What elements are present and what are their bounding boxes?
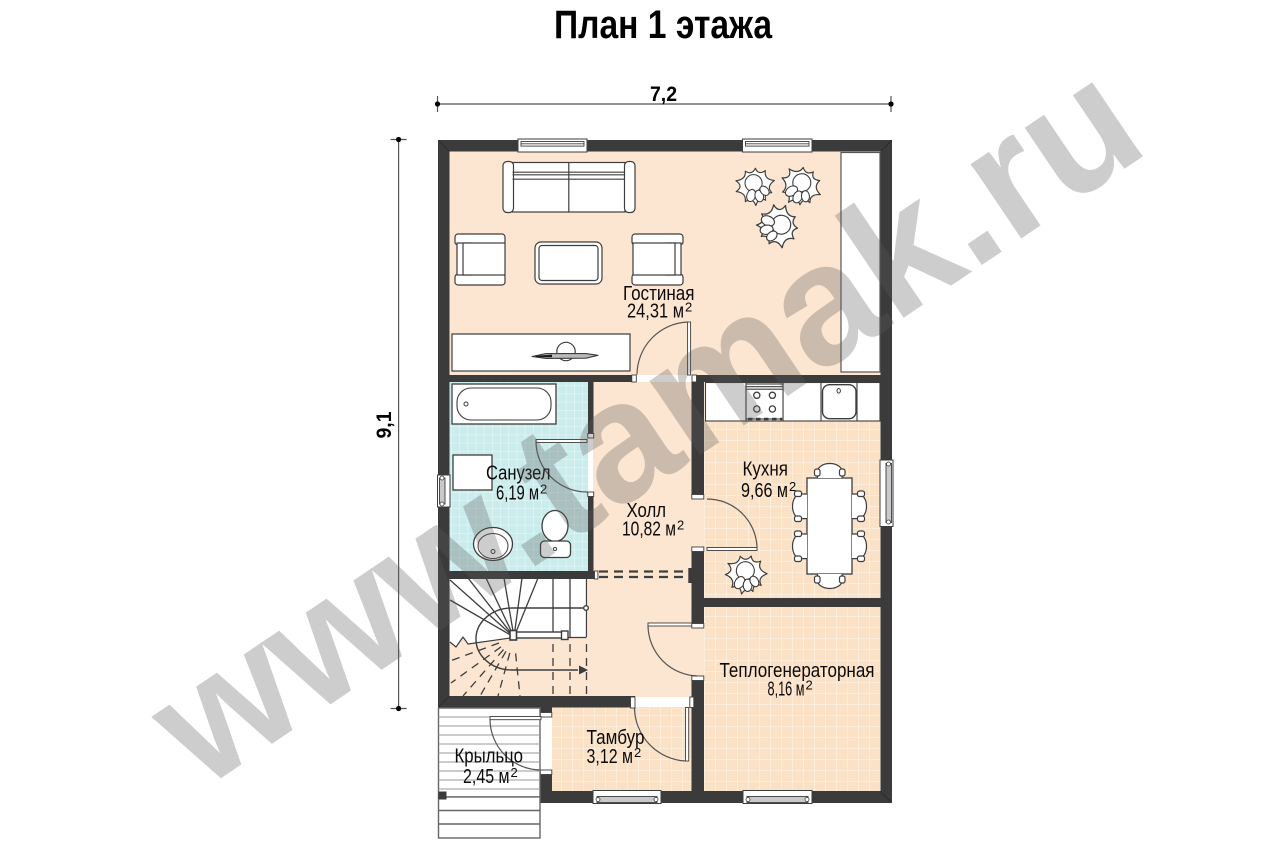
svg-text:2: 2 bbox=[806, 678, 813, 693]
svg-text:3,12 м: 3,12 м bbox=[587, 746, 634, 768]
svg-text:2: 2 bbox=[677, 518, 684, 533]
svg-text:7,2: 7,2 bbox=[650, 83, 677, 106]
svg-text:2: 2 bbox=[511, 765, 518, 780]
svg-text:План 1 этажа: План 1 этажа bbox=[554, 3, 773, 47]
svg-text:2: 2 bbox=[634, 745, 641, 760]
svg-text:8,16 м: 8,16 м bbox=[768, 679, 805, 701]
svg-text:2,45 м: 2,45 м bbox=[463, 766, 510, 788]
svg-text:9,1: 9,1 bbox=[373, 411, 396, 438]
svg-text:2: 2 bbox=[789, 479, 796, 494]
svg-text:9,66 м: 9,66 м bbox=[741, 480, 788, 502]
